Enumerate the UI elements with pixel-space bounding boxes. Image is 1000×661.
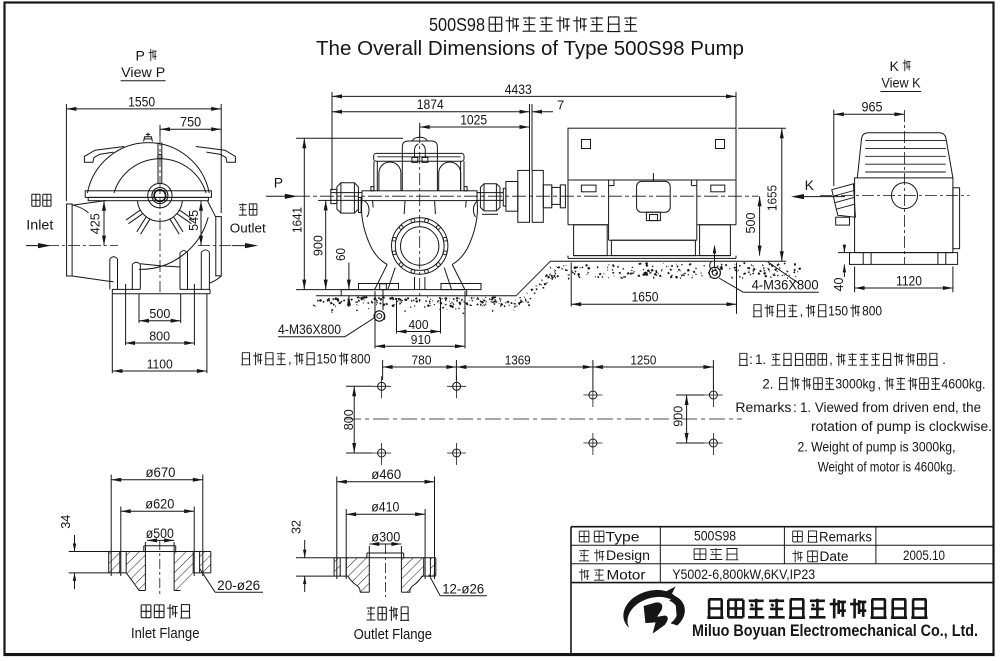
svg-text:1650: 1650 — [632, 290, 659, 305]
svg-text:1641: 1641 — [290, 207, 305, 233]
svg-text:Date: Date — [820, 549, 849, 564]
svg-text:3000kg: 3000kg — [835, 376, 875, 391]
svg-text:,: , — [829, 352, 833, 367]
svg-text:View K: View K — [882, 75, 922, 91]
svg-text:Y5002-6,800kW,6KV,IP23: Y5002-6,800kW,6KV,IP23 — [672, 566, 815, 582]
svg-text:Design: Design — [606, 548, 650, 563]
svg-text:View P: View P — [121, 64, 165, 80]
svg-text:K: K — [805, 177, 815, 193]
svg-text:ø410: ø410 — [371, 500, 399, 515]
svg-text:1100: 1100 — [147, 356, 173, 371]
svg-text:Motor: Motor — [607, 568, 647, 583]
svg-text:1. Viewed from driven end, the: 1. Viewed from driven end, the — [800, 400, 981, 415]
svg-text:4-M36X800: 4-M36X800 — [278, 322, 341, 337]
svg-text:500S98: 500S98 — [429, 15, 485, 35]
svg-text:545: 545 — [186, 210, 201, 231]
svg-text:P: P — [274, 175, 283, 191]
svg-text:1250: 1250 — [630, 352, 656, 367]
svg-text:500: 500 — [743, 213, 758, 234]
svg-text:7: 7 — [557, 98, 564, 113]
svg-text:150: 150 — [828, 304, 848, 319]
svg-text:4433: 4433 — [505, 82, 532, 97]
svg-text:1550: 1550 — [128, 94, 155, 109]
svg-text:ø500: ø500 — [146, 526, 174, 541]
svg-text:900: 900 — [670, 406, 685, 427]
svg-text:Type: Type — [606, 529, 640, 544]
svg-text:4600kg.: 4600kg. — [941, 376, 985, 391]
svg-text:1025: 1025 — [460, 112, 487, 127]
svg-text:900: 900 — [311, 235, 326, 256]
svg-text:400: 400 — [409, 317, 429, 332]
svg-text:Outlet: Outlet — [230, 221, 266, 236]
svg-text:800: 800 — [149, 328, 170, 343]
svg-text:ø300: ø300 — [371, 529, 400, 544]
svg-text:Weight of motor is 4600kg.: Weight of motor is 4600kg. — [818, 460, 956, 475]
svg-text:800: 800 — [351, 352, 371, 367]
svg-text:780: 780 — [412, 352, 432, 367]
svg-text:Inlet: Inlet — [26, 218, 53, 233]
svg-text:Inlet Flange: Inlet Flange — [131, 626, 200, 642]
svg-text:2. Weight of pump is 3000kg,: 2. Weight of pump is 3000kg, — [798, 439, 956, 454]
svg-text:,: , — [800, 304, 804, 319]
svg-text:1.: 1. — [755, 352, 766, 367]
svg-text:ø460: ø460 — [371, 467, 401, 482]
svg-text:Outlet Flange: Outlet Flange — [354, 627, 433, 643]
svg-text:The Overall Dimensions of Type: The Overall Dimensions of Type 500S98 Pu… — [316, 37, 744, 60]
svg-text:910: 910 — [411, 332, 431, 347]
svg-text:40: 40 — [831, 278, 846, 292]
svg-text:,: , — [288, 352, 292, 367]
svg-text:20-ø26: 20-ø26 — [217, 578, 260, 593]
svg-text:1369: 1369 — [505, 352, 531, 367]
svg-text:Miluo Boyuan Electromechanical: Miluo Boyuan Electromechanical Co., Ltd. — [692, 622, 978, 640]
svg-text:800: 800 — [862, 304, 882, 319]
svg-text:,: , — [877, 376, 881, 391]
svg-text:32: 32 — [289, 520, 304, 534]
svg-text:1655: 1655 — [765, 185, 780, 211]
svg-text:800: 800 — [341, 409, 356, 430]
svg-text:965: 965 — [862, 100, 883, 115]
svg-text:ø620: ø620 — [145, 497, 174, 512]
svg-text:Remarks: Remarks — [735, 400, 791, 415]
svg-text:60: 60 — [333, 248, 348, 261]
svg-text:2.: 2. — [762, 376, 773, 391]
svg-text:2005.10: 2005.10 — [903, 548, 945, 563]
svg-text:ø670: ø670 — [146, 465, 176, 480]
svg-text:750: 750 — [180, 115, 201, 130]
svg-text:34: 34 — [58, 515, 73, 529]
svg-text:12-ø26: 12-ø26 — [442, 581, 484, 596]
svg-text:rotation of pump is clockwise: rotation of pump is clockwise. — [811, 419, 992, 434]
svg-text:150: 150 — [317, 352, 337, 367]
svg-text:P: P — [136, 48, 145, 64]
svg-text::: : — [793, 400, 797, 415]
svg-text:500S98: 500S98 — [694, 529, 736, 544]
svg-text:500: 500 — [149, 306, 170, 321]
svg-text::: : — [749, 352, 753, 367]
svg-text:425: 425 — [88, 213, 103, 234]
svg-text:4-M36X800: 4-M36X800 — [752, 278, 819, 293]
svg-text:Remarks: Remarks — [819, 529, 872, 544]
svg-text:1120: 1120 — [896, 273, 922, 288]
svg-text:1874: 1874 — [417, 97, 444, 112]
svg-text:K: K — [890, 58, 900, 74]
svg-text:.: . — [942, 352, 946, 367]
